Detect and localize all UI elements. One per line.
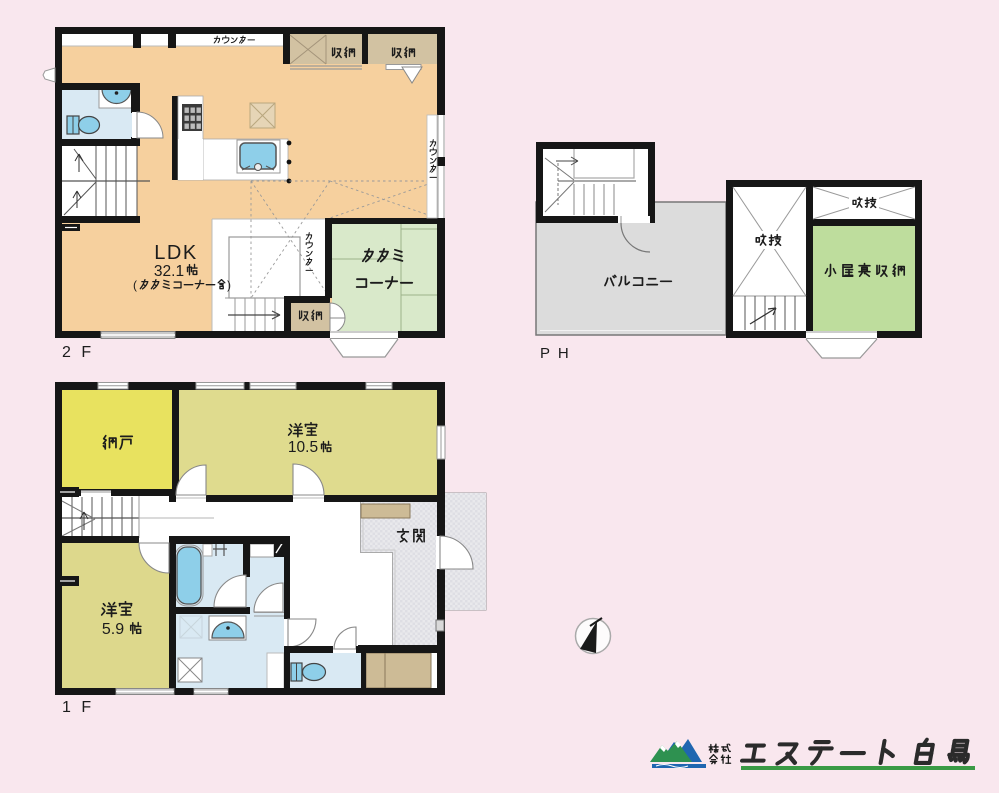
svg-text:32.1: 32.1 — [154, 263, 184, 280]
svg-text:1 F: 1 F — [62, 699, 94, 716]
svg-text:2 F: 2 F — [62, 344, 94, 361]
svg-text:5.9: 5.9 — [102, 621, 124, 638]
svg-text:P H: P H — [540, 345, 571, 362]
svg-text:): ) — [227, 278, 231, 292]
svg-text:10.5: 10.5 — [288, 439, 318, 456]
svg-text:LDK: LDK — [154, 242, 197, 264]
svg-text:(: ( — [133, 278, 137, 292]
